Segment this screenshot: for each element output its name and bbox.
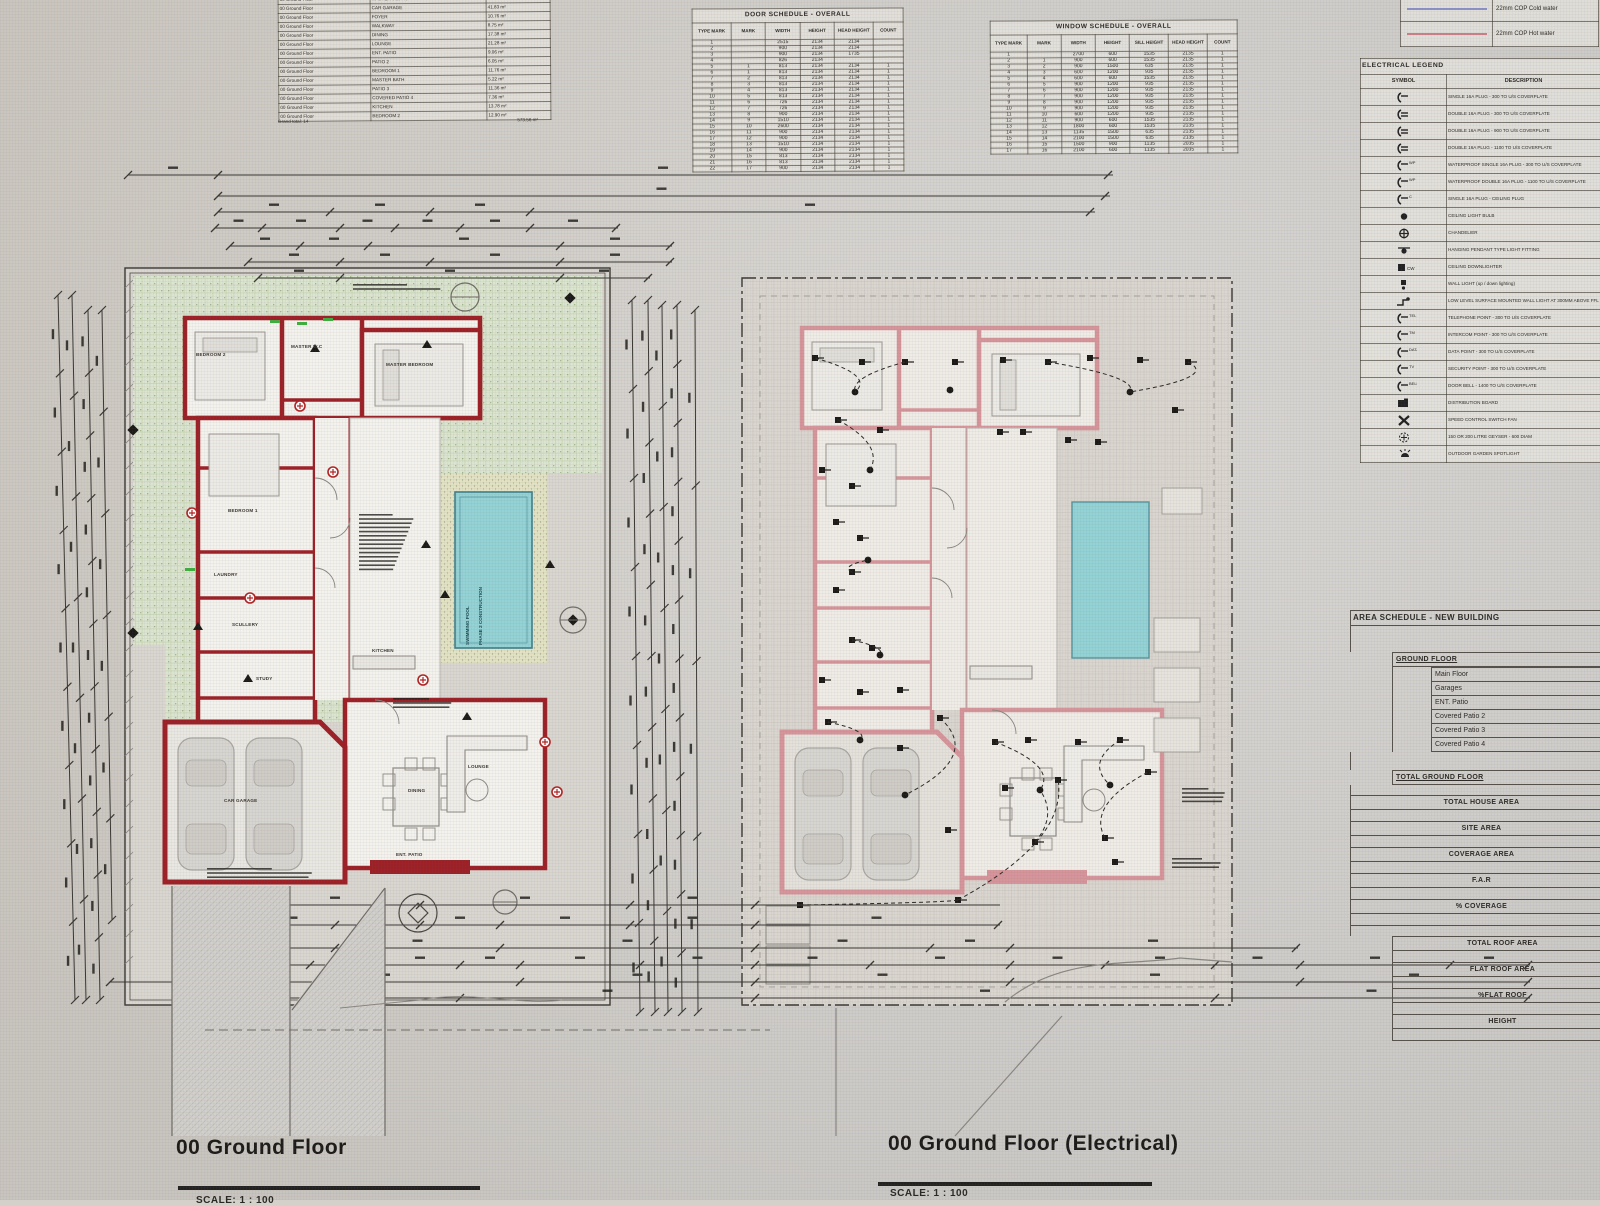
- right-plan: [742, 278, 1232, 1005]
- legend-row: DOUBLE 16A PLUG - 300 TO U/S COVERPLATE: [1361, 106, 1600, 123]
- area-item: %FLAT ROOF: [1393, 989, 1600, 1003]
- column-header: COUNT: [873, 22, 903, 39]
- area-item: SITE AREA: [1351, 822, 1600, 836]
- column-header: TYPE MARK: [692, 23, 731, 40]
- column-header: HEAD HEIGHT: [834, 22, 873, 39]
- pipe-legend-row: 22mm COP Cold water: [1401, 0, 1599, 22]
- room-label: LOUNGE: [468, 764, 489, 769]
- room-label: ENT. PATIO: [396, 852, 423, 857]
- plug-double-icon: [1361, 140, 1447, 157]
- legend-row: SPEED CONTROL SWITCH FAN: [1361, 412, 1600, 429]
- pipe-swatch: [1407, 8, 1487, 10]
- bell-icon: BELL: [1361, 378, 1447, 395]
- legend-row: DATADATA POINT - 300 TO U/S COVERPLATE: [1361, 344, 1600, 361]
- data-icon: DATA: [1361, 344, 1447, 361]
- room-label: KITCHEN: [372, 648, 394, 653]
- room-label: STUDY: [256, 676, 273, 681]
- area-ground-floor-group: GROUND FLOOR Main FloorGaragesENT. Patio…: [1392, 652, 1600, 752]
- room-label: SCULLERY: [232, 622, 258, 627]
- legend-row: 150 OR 200 LITRE GEYSER - 600 DIAM: [1361, 429, 1600, 446]
- area-item: Covered Patio 2: [1432, 710, 1600, 724]
- room-label: LAUNDRY: [214, 572, 238, 577]
- column-header: HEIGHT: [800, 22, 834, 39]
- legend-row: LOW LEVEL SURFACE MOUNTED WALL LIGHT AT …: [1361, 293, 1600, 310]
- area-value-row: [1393, 951, 1600, 963]
- fan-icon: [1361, 412, 1447, 429]
- svg-text:TEL: TEL: [1409, 313, 1417, 318]
- column-header: DESCRIPTION: [1447, 75, 1600, 89]
- area-value-row: [1351, 810, 1600, 822]
- total-ground-floor-label: TOTAL GROUND FLOOR: [1396, 774, 1483, 781]
- pool-label-line1: SWIMMING POOL: [465, 606, 470, 645]
- legend-row: HANGING PENDANT TYPE LIGHT FITTING: [1361, 242, 1600, 259]
- door-schedule-table: DOOR SCHEDULE - OVERALL TYPE MARKMARKWID…: [692, 7, 905, 172]
- area-summary-rows: TOTAL HOUSE AREASITE AREACOVERAGE AREAF.…: [1350, 795, 1600, 926]
- db-icon: [1361, 395, 1447, 412]
- left-plan-title: 00 Ground Floor: [176, 1136, 347, 1160]
- column-header: HEIGHT: [1095, 34, 1129, 51]
- legend-row: CWCEILING DOWNLIGHTER: [1361, 259, 1600, 276]
- tel-icon: TEL: [1361, 310, 1447, 327]
- column-header: TYPE MARK: [990, 35, 1027, 52]
- area-value-row: [1393, 1003, 1600, 1015]
- legend-row: OUTDOOR GARDEN SPOTLIGHT: [1361, 446, 1600, 463]
- room-label: MASTER W.C: [291, 344, 322, 349]
- area-item: Main Floor: [1432, 668, 1600, 682]
- legend-row: DISTRIBUTION BOARD: [1361, 395, 1600, 412]
- column-header: SILL HEIGHT: [1130, 34, 1169, 51]
- area-value-row: [1351, 836, 1600, 848]
- area-item: ENT. Patio: [1432, 696, 1600, 710]
- plug-single-icon: [1361, 89, 1447, 106]
- svg-text:CW: CW: [1407, 266, 1415, 271]
- left-plan-scale: SCALE: 1 : 100: [196, 1195, 274, 1206]
- legend-row: TVSECURITY POINT - 300 TO U/S COVERPLATE: [1361, 361, 1600, 378]
- wall-light-icon: [1361, 276, 1447, 293]
- area-item: COVERAGE AREA: [1351, 848, 1600, 862]
- svg-text:BELL: BELL: [1409, 381, 1417, 386]
- legend-row: WPWATERPROOF DOUBLE 16A PLUG - 1100 TO U…: [1361, 174, 1600, 191]
- drawing-sheet: 00 Ground FloorMASTER BEDROOM25.07 m²00 …: [0, 0, 1600, 1200]
- area-item: Garages: [1432, 682, 1600, 696]
- plug-double-icon: [1361, 123, 1447, 140]
- foot-light-icon: [1361, 293, 1447, 310]
- pool-label-line2: PHASE 2 CONSTRUCTION: [478, 587, 483, 645]
- pipe-legend-row: 22mm COP Hot water: [1401, 22, 1599, 47]
- right-plan-title-underline: [878, 1182, 1152, 1186]
- door-schedule-title: DOOR SCHEDULE - OVERALL: [692, 8, 903, 23]
- column-header: SYMBOL: [1361, 75, 1447, 89]
- room-label: DINING: [408, 788, 425, 793]
- area-value-row: [1351, 862, 1600, 874]
- legend-row: SINGLE 16A PLUG - 300 TO U/S COVERPLATE: [1361, 89, 1600, 106]
- legend-row: CHANDELIER: [1361, 225, 1600, 242]
- legend-row: CSINGLE 16A PLUG - CEILING PLUG: [1361, 191, 1600, 208]
- column-header: MARK: [731, 23, 765, 40]
- area-roof-rows: TOTAL ROOF AREAFLAT ROOF AREA%FLAT ROOFH…: [1392, 936, 1600, 1041]
- svg-text:WP: WP: [1409, 160, 1416, 165]
- area-value-row: [1351, 888, 1600, 900]
- area-item: TOTAL HOUSE AREA: [1351, 796, 1600, 810]
- room-label: BEDROOM 1: [228, 508, 258, 513]
- legend-row: CEILING LIGHT BULB: [1361, 208, 1600, 225]
- plug-wp-icon: WP: [1361, 157, 1447, 174]
- electrical-legend-title: ELECTRICAL LEGEND: [1361, 59, 1600, 75]
- plug-ceiling-icon: C: [1361, 191, 1447, 208]
- area-schedule: AREA SCHEDULE - NEW BUILDING GROUND FLOO…: [1350, 610, 1600, 1041]
- right-plan-title: 00 Ground Floor (Electrical): [888, 1132, 1179, 1156]
- legend-row: WALL LIGHT (up / down lighting): [1361, 276, 1600, 293]
- downlighter-icon: CW: [1361, 259, 1447, 276]
- svg-text:C: C: [1409, 194, 1412, 199]
- area-item: FLAT ROOF AREA: [1393, 963, 1600, 977]
- svg-text:DATA: DATA: [1409, 347, 1417, 352]
- area-schedule-title: AREA SCHEDULE - NEW BUILDING: [1350, 610, 1600, 626]
- dot-icon: [1361, 208, 1447, 225]
- legend-row: TELTELEPHONE POINT - 300 TO U/S COVERPLA…: [1361, 310, 1600, 327]
- table-row: 17162100600113520351: [991, 147, 1238, 154]
- pendant-icon: [1361, 242, 1447, 259]
- room-label: MASTER BEDROOM: [386, 362, 433, 367]
- svg-text:TV: TV: [1409, 364, 1414, 369]
- column-header: HEAD HEIGHT: [1169, 34, 1208, 51]
- grand-total-label: Grand total: 14: [278, 119, 308, 124]
- legend-row: WPWATERPROOF SINGLE 16A PLUG - 300 TO U/…: [1361, 157, 1600, 174]
- area-value-row: [1351, 914, 1600, 926]
- right-plan-scale: SCALE: 1 : 100: [890, 1188, 968, 1199]
- ground-floor-label: GROUND FLOOR: [1396, 656, 1457, 663]
- column-header: WIDTH: [1061, 35, 1095, 52]
- plug-wp-icon: WP: [1361, 174, 1447, 191]
- chandelier-icon: [1361, 225, 1447, 242]
- legend-row: BELLDOOR BELL - 1400 TO U/S COVERPLATE: [1361, 378, 1600, 395]
- column-header: COUNT: [1207, 34, 1237, 51]
- svg-text:TM: TM: [1409, 330, 1415, 335]
- area-item: Covered Patio 4: [1432, 738, 1600, 752]
- grand-total-area: 573.56 m²: [517, 117, 538, 122]
- tv-icon: TV: [1361, 361, 1447, 378]
- pipe-legend-table: 22mm COP Cold water22mm COP Hot water: [1400, 0, 1599, 47]
- electrical-legend-table: ELECTRICAL LEGEND SYMBOLDESCRIPTION SING…: [1360, 58, 1600, 463]
- tm-icon: TM: [1361, 327, 1447, 344]
- window-schedule-title: WINDOW SCHEDULE - OVERALL: [990, 20, 1237, 35]
- left-plan-title-underline: [178, 1186, 480, 1190]
- table-row: 2217900213421341: [693, 165, 904, 172]
- area-item: % COVERAGE: [1351, 900, 1600, 914]
- spot-icon: [1361, 446, 1447, 463]
- svg-text:WP: WP: [1409, 177, 1416, 182]
- area-item: TOTAL ROOF AREA: [1393, 937, 1600, 951]
- area-item: Covered Patio 3: [1432, 724, 1600, 738]
- room-label: CAR GARAGE: [224, 798, 257, 803]
- column-header: MARK: [1027, 35, 1061, 52]
- legend-row: TMINTERCOM POINT - 300 TO U/S COVERPLATE: [1361, 327, 1600, 344]
- room-schedule-table: 00 Ground FloorMASTER BEDROOM25.07 m²00 …: [278, 0, 552, 122]
- legend-row: DOUBLE 16A PLUG - 1100 TO U/S COVERPLATE: [1361, 140, 1600, 157]
- area-item: HEIGHT: [1393, 1015, 1600, 1029]
- area-value-row: [1393, 1029, 1600, 1041]
- window-schedule-table: WINDOW SCHEDULE - OVERALL TYPE MARKMARKW…: [990, 19, 1239, 154]
- area-item: F.A.R: [1351, 874, 1600, 888]
- pipe-swatch: [1407, 33, 1487, 35]
- geyser-icon: [1361, 429, 1447, 446]
- column-header: WIDTH: [766, 22, 800, 39]
- area-value-row: [1393, 977, 1600, 989]
- plug-double-icon: [1361, 106, 1447, 123]
- room-label: BEDROOM 2: [196, 352, 226, 357]
- legend-row: DOUBLE 16A PLUG - 900 TO U/S COVERPLATE: [1361, 123, 1600, 140]
